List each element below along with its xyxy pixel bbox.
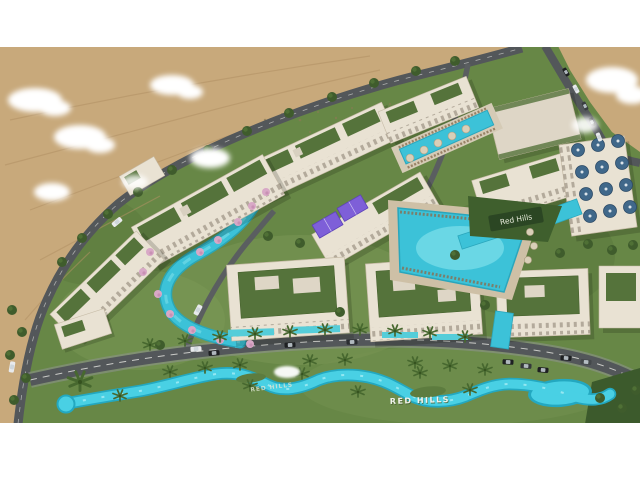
- low-cloud: [274, 366, 300, 378]
- letterbox-top: [0, 0, 640, 47]
- river-start-pool: [58, 396, 75, 413]
- aerial-render: Red Hills: [0, 0, 640, 480]
- car-white: [190, 346, 201, 352]
- car-dark: [208, 350, 219, 356]
- building-far-right: [599, 266, 640, 333]
- render-stage: Red Hills: [0, 0, 640, 480]
- letterbox-bottom: [0, 423, 640, 480]
